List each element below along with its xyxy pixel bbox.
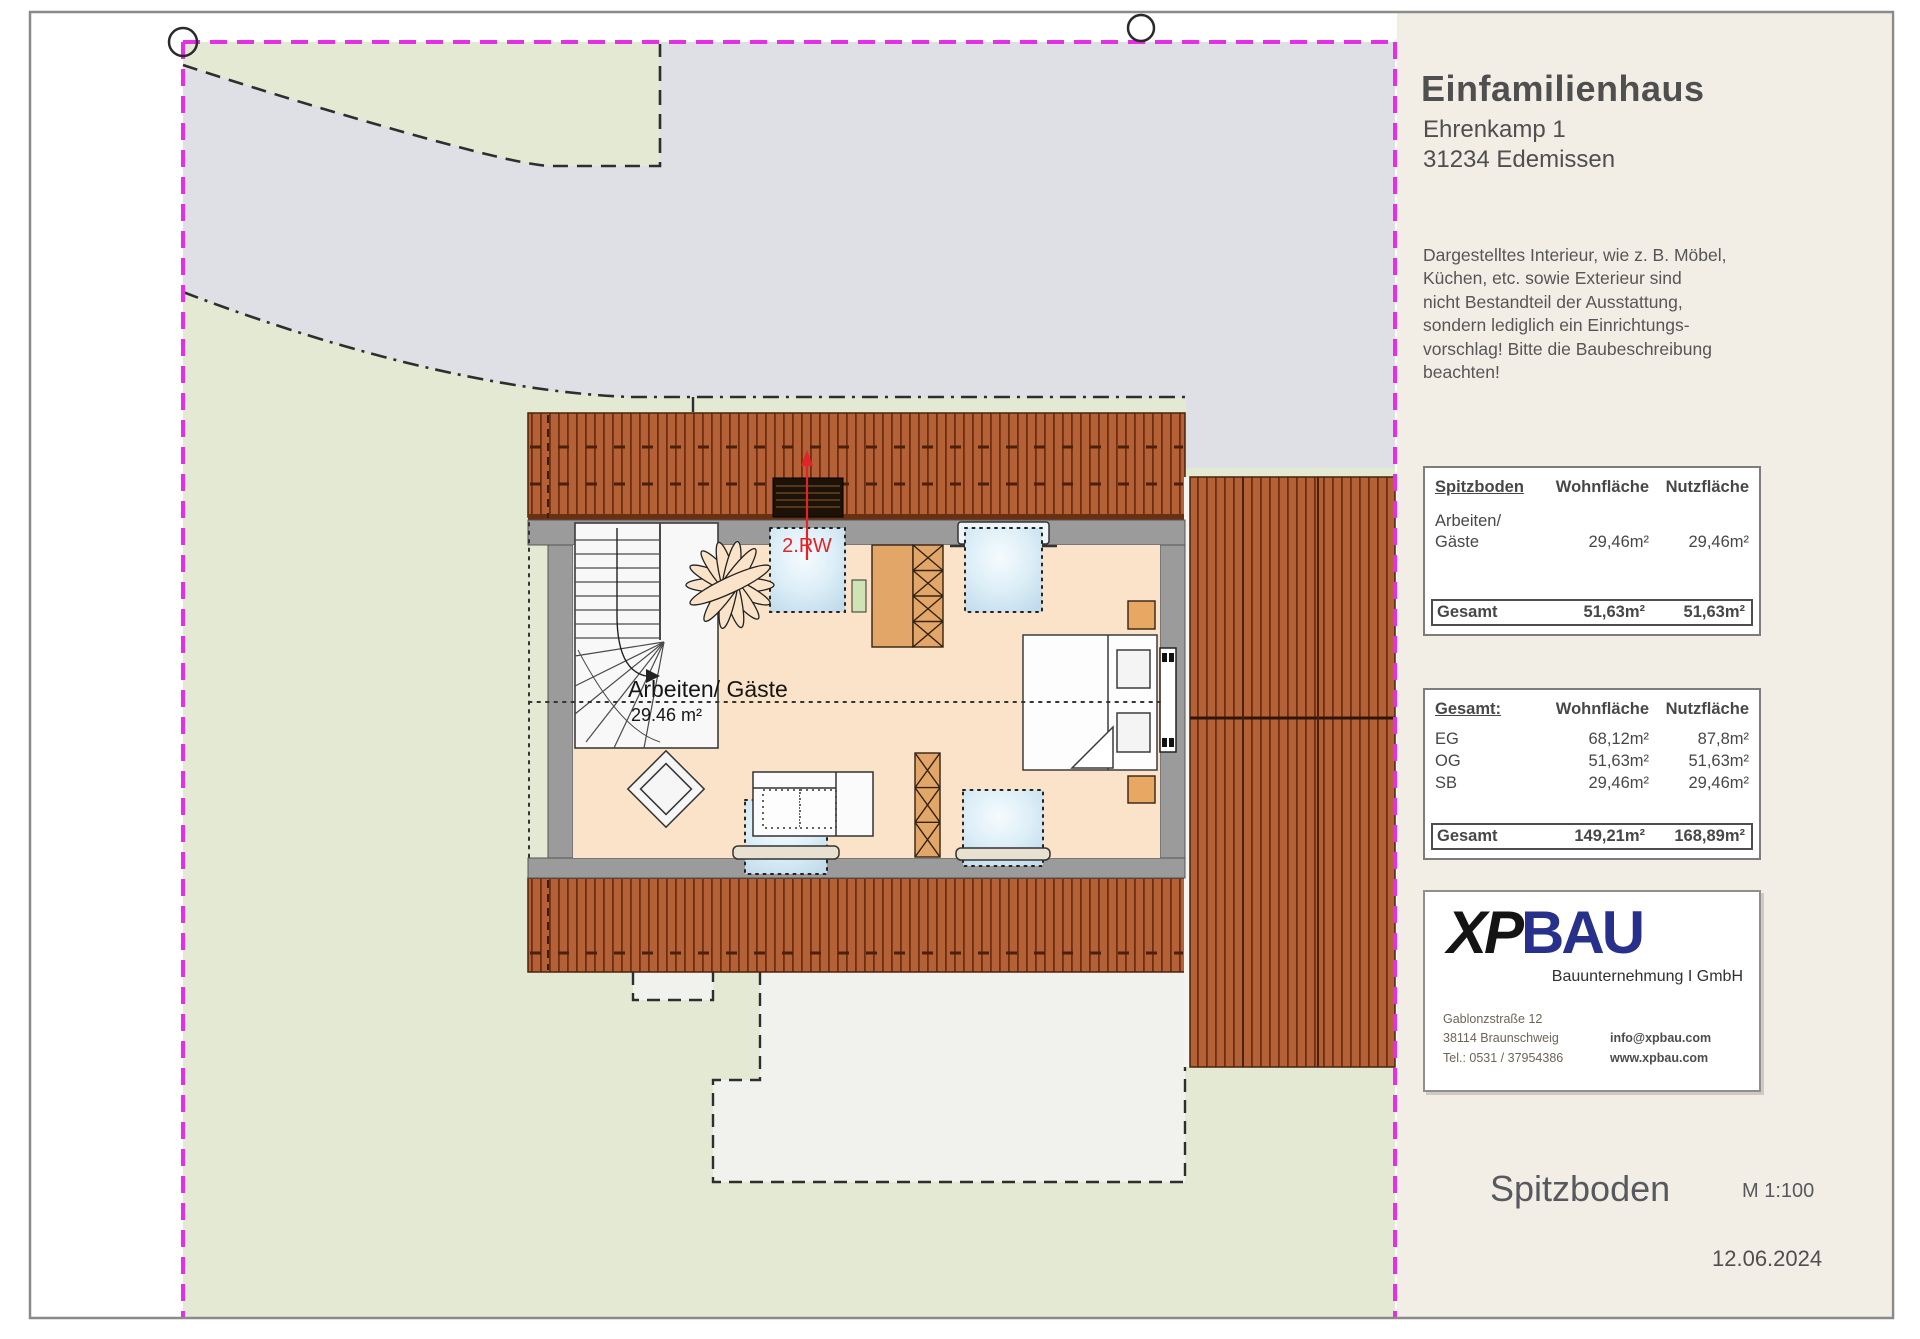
room-row-wohn: 29,46m² [1531, 532, 1649, 553]
floor-plan-house: 2.RW Arbeiten/ Gäste 29.46 m² [528, 413, 1395, 1067]
wardrobe [872, 545, 943, 647]
company-subtitle: Bauunternehmung I GmbH [1552, 968, 1743, 986]
wall-bottom [528, 858, 1185, 878]
room-row-label: Arbeiten/ [1435, 511, 1531, 532]
gesamt-total-row: Gesamt 149,21m² 168,89m² [1431, 823, 1753, 850]
table-header-nutzflaeche: Nutzfläche [1649, 478, 1749, 497]
summary-row-og: OG 51,63m² 51,63m² [1435, 751, 1749, 773]
sofa [753, 772, 873, 836]
shelf-column [915, 753, 940, 857]
company-web-contact: info@xpbau.com www.xpbau.com [1610, 1028, 1711, 1068]
summary-row-eg: EG 68,12m² 87,8m² [1435, 729, 1749, 751]
spitzboden-total-row: Gesamt 51,63m² 51,63m² [1431, 599, 1753, 626]
roof-top-band [528, 413, 1185, 520]
disclaimer-text: Dargestelltes Interieur, wie z. B. Möbel… [1423, 244, 1726, 385]
site-and-floor-plan-drawing: 2.RW Arbeiten/ Gäste 29.46 m² [0, 0, 1920, 1339]
summary-table-gesamt: Gesamt: Wohnfläche Nutzfläche EG 68,12m²… [1423, 688, 1761, 860]
xpbau-logo: XPBAU [1447, 898, 1642, 967]
table-header-floor: Spitzboden [1435, 478, 1531, 497]
area-table-spitzboden: Spitzboden Wohnfläche Nutzfläche Arbeite… [1423, 466, 1761, 636]
window-right-wall [1160, 648, 1176, 752]
project-address-street: Ehrenkamp 1 [1423, 116, 1566, 144]
survey-circle-2 [1128, 15, 1154, 41]
plan-sheet: 2.RW Arbeiten/ Gäste 29.46 m² Einfamilie… [0, 0, 1920, 1339]
room-row-nutz: 29,46m² [1649, 532, 1749, 553]
project-address-city: 31234 Edemissen [1423, 146, 1615, 174]
wall-left [548, 545, 573, 858]
nightstand-2 [1128, 776, 1155, 803]
sheet-scale: M 1:100 [1742, 1180, 1814, 1203]
company-phone: Tel.: 0531 / 37954386 [1443, 1049, 1563, 1068]
entry-step-outline [633, 972, 713, 1000]
skylight-2 [950, 522, 1057, 612]
company-address: Gablonzstraße 12 38114 Braunschweig Tel.… [1443, 1010, 1563, 1068]
summary-row-sb: SB 29,46m² 29,46m² [1435, 773, 1749, 795]
vent-label: 2.RW [782, 535, 832, 557]
skylight-4 [956, 790, 1050, 866]
nightstand-1 [1128, 601, 1155, 629]
project-title: Einfamilienhaus [1421, 68, 1705, 110]
table-header-wohnflaeche: Wohnfläche [1531, 478, 1649, 497]
wall-board [852, 580, 866, 612]
roof-side-garage [1184, 477, 1395, 1067]
room-label: Arbeiten/ Gäste [628, 676, 788, 702]
company-website: www.xpbau.com [1610, 1048, 1711, 1068]
room-row-label2: Gäste [1435, 532, 1531, 553]
summary-header-wohnflaeche: Wohnfläche [1531, 700, 1649, 719]
company-logo-box: XPBAU Bauunternehmung I GmbH Gablonzstra… [1423, 890, 1761, 1092]
company-email: info@xpbau.com [1610, 1028, 1711, 1048]
room-area-label: 29.46 m² [631, 705, 702, 725]
roof-bottom-band [528, 874, 1185, 972]
sheet-title: Spitzboden [1490, 1168, 1670, 1210]
summary-header-nutzflaeche: Nutzfläche [1649, 700, 1749, 719]
summary-header-gesamt: Gesamt: [1435, 700, 1531, 719]
sheet-date: 12.06.2024 [1712, 1246, 1822, 1272]
title-block-background [1397, 13, 1891, 1317]
